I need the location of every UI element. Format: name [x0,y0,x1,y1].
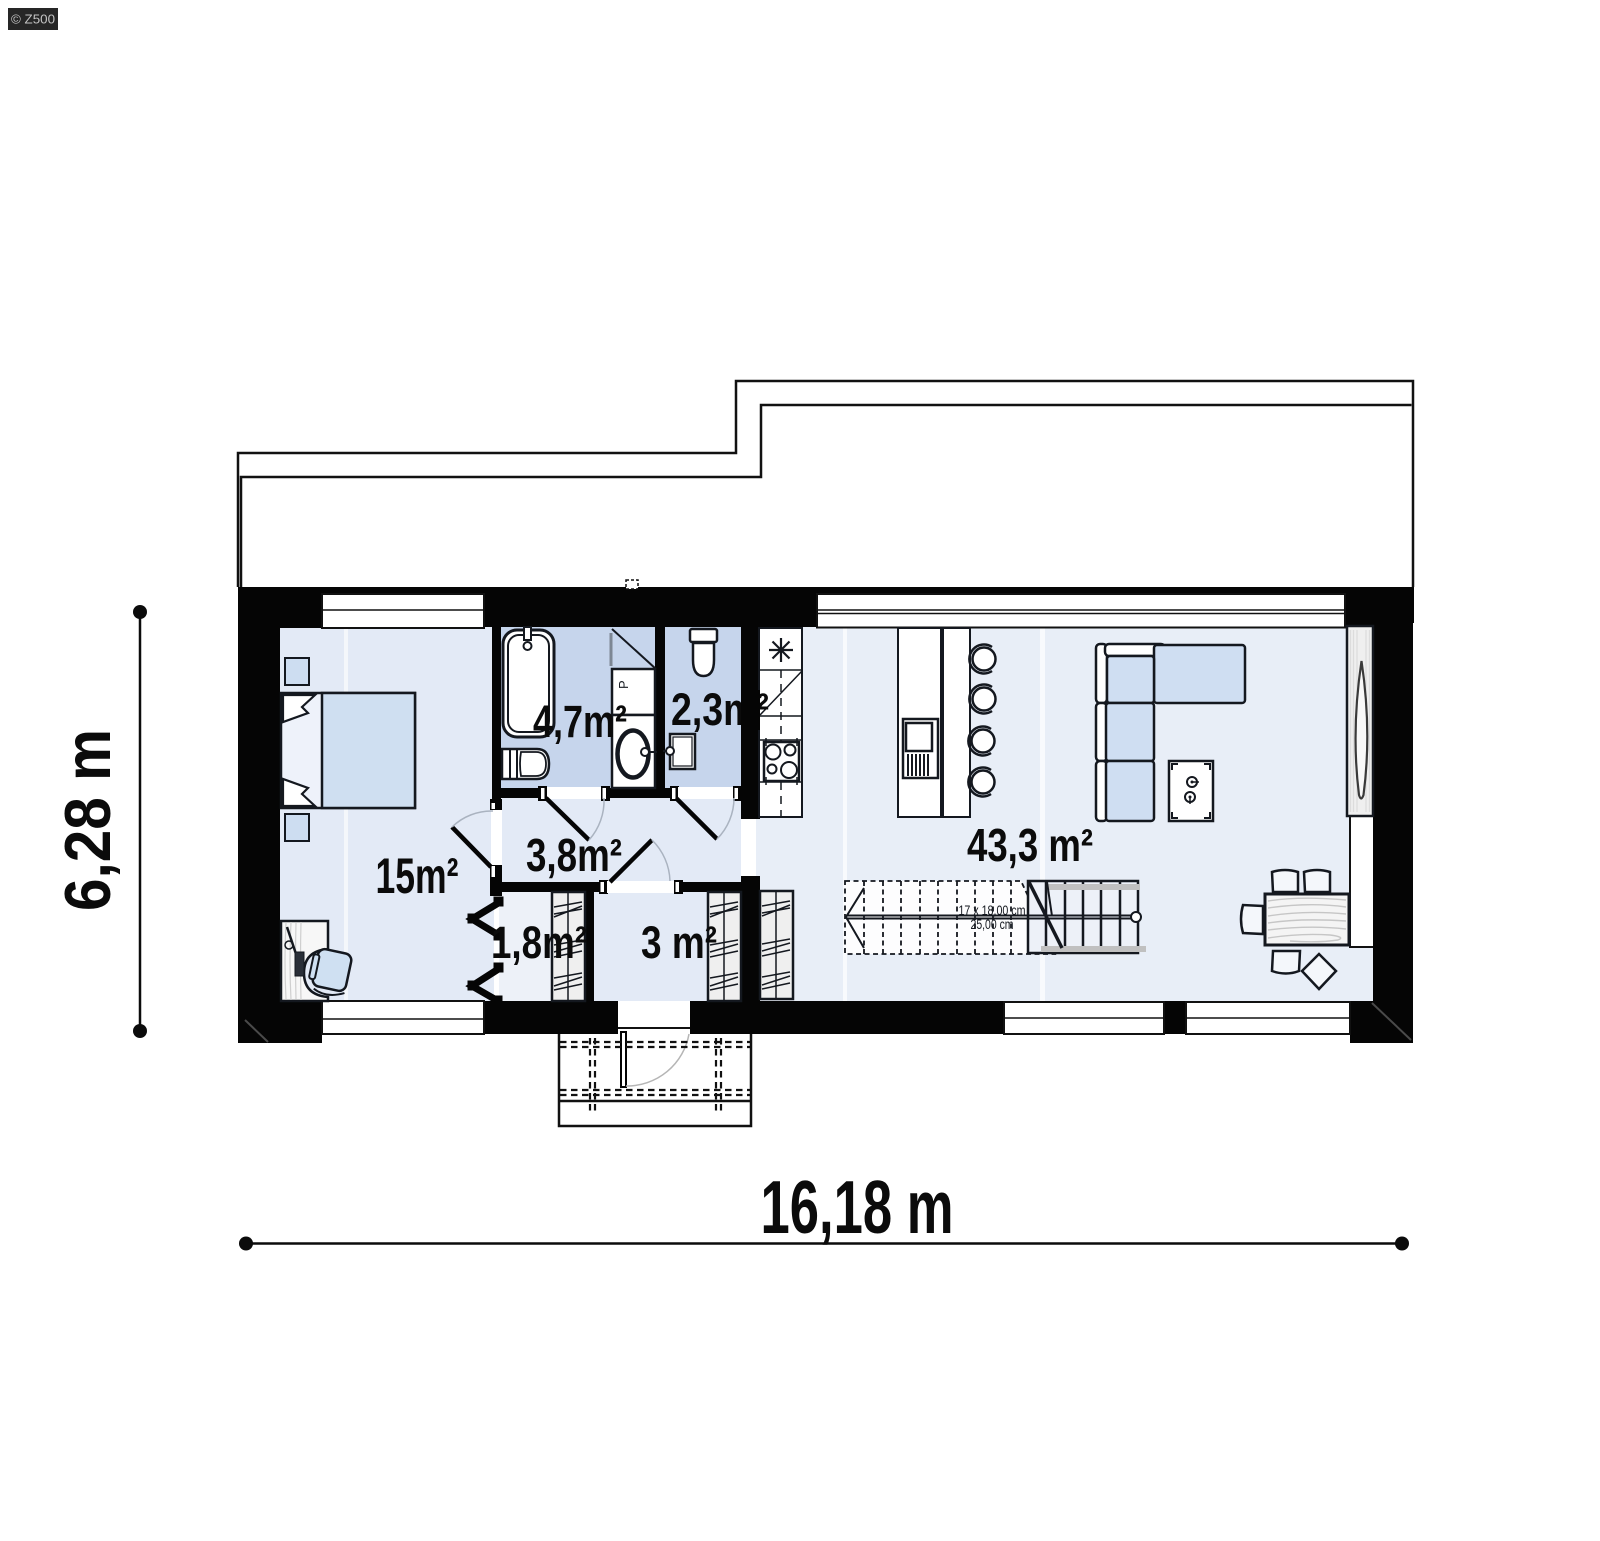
svg-text:15m²: 15m² [376,848,459,904]
svg-text:3 m²: 3 m² [641,917,717,968]
svg-text:4,7m²: 4,7m² [533,696,627,747]
svg-text:25,00 cm: 25,00 cm [971,917,1014,932]
svg-text:3,8m²: 3,8m² [526,829,622,881]
svg-text:P: P [616,680,631,689]
svg-text:17 x 18,00 cm: 17 x 18,00 cm [959,903,1026,918]
svg-text:© Z500: © Z500 [11,12,55,27]
svg-text:1,8m²: 1,8m² [491,917,587,968]
svg-text:43,3 m²: 43,3 m² [967,819,1093,871]
svg-text:6,28 m: 6,28 m [51,729,124,911]
svg-text:16,18 m: 16,18 m [761,1165,954,1249]
